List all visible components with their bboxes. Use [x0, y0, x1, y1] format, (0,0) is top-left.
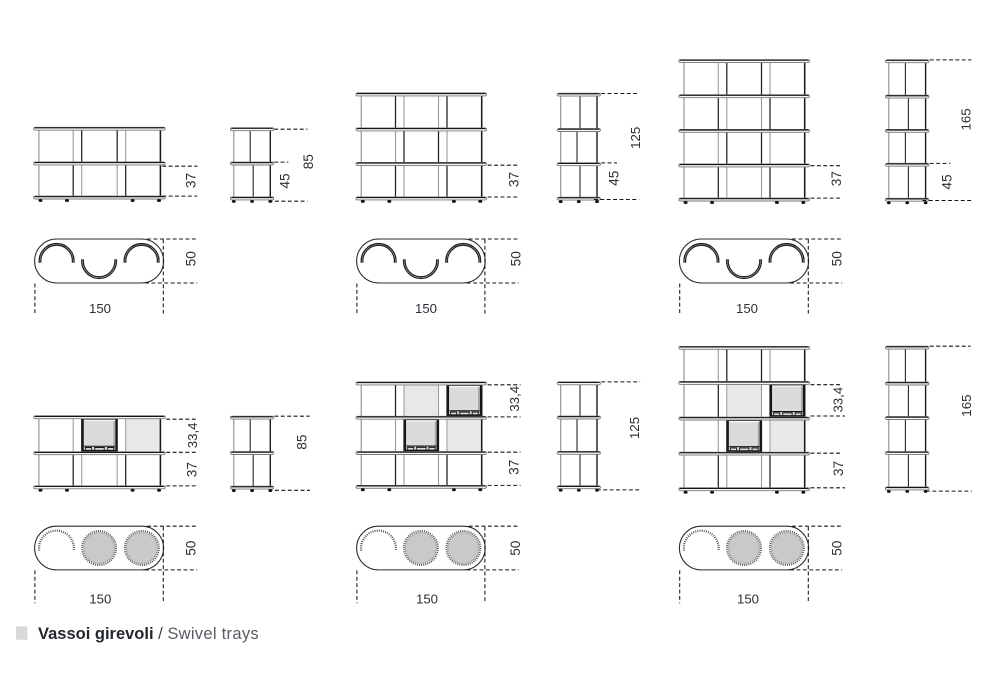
svg-text:37: 37	[507, 460, 522, 475]
svg-text:125: 125	[628, 127, 643, 149]
svg-text:45: 45	[607, 170, 622, 186]
svg-text:45: 45	[277, 173, 292, 189]
svg-text:150: 150	[415, 301, 437, 316]
svg-text:125: 125	[627, 417, 642, 439]
svg-text:33,4: 33,4	[507, 386, 522, 412]
svg-text:165: 165	[959, 108, 974, 130]
svg-text:37: 37	[829, 171, 844, 186]
svg-text:50: 50	[830, 251, 845, 267]
svg-text:150: 150	[416, 592, 438, 607]
svg-text:50: 50	[830, 540, 845, 556]
svg-text:165: 165	[959, 395, 974, 417]
svg-text:150: 150	[737, 592, 759, 607]
svg-text:37: 37	[831, 461, 846, 476]
svg-text:33,4: 33,4	[185, 423, 200, 449]
svg-text:50: 50	[508, 540, 523, 556]
svg-text:37: 37	[507, 172, 522, 187]
svg-text:45: 45	[940, 174, 955, 190]
svg-text:37: 37	[184, 462, 199, 477]
svg-text:150: 150	[89, 592, 111, 607]
svg-text:85: 85	[294, 434, 309, 450]
svg-text:Vassoi girevoli / Swivel trays: Vassoi girevoli / Swivel trays	[38, 625, 259, 643]
svg-text:150: 150	[736, 301, 758, 316]
svg-text:37: 37	[184, 173, 199, 188]
svg-text:85: 85	[301, 154, 316, 170]
svg-text:50: 50	[509, 251, 524, 267]
svg-text:50: 50	[184, 251, 199, 267]
svg-text:50: 50	[184, 540, 199, 556]
svg-text:33,4: 33,4	[830, 387, 845, 413]
svg-text:150: 150	[89, 301, 111, 316]
